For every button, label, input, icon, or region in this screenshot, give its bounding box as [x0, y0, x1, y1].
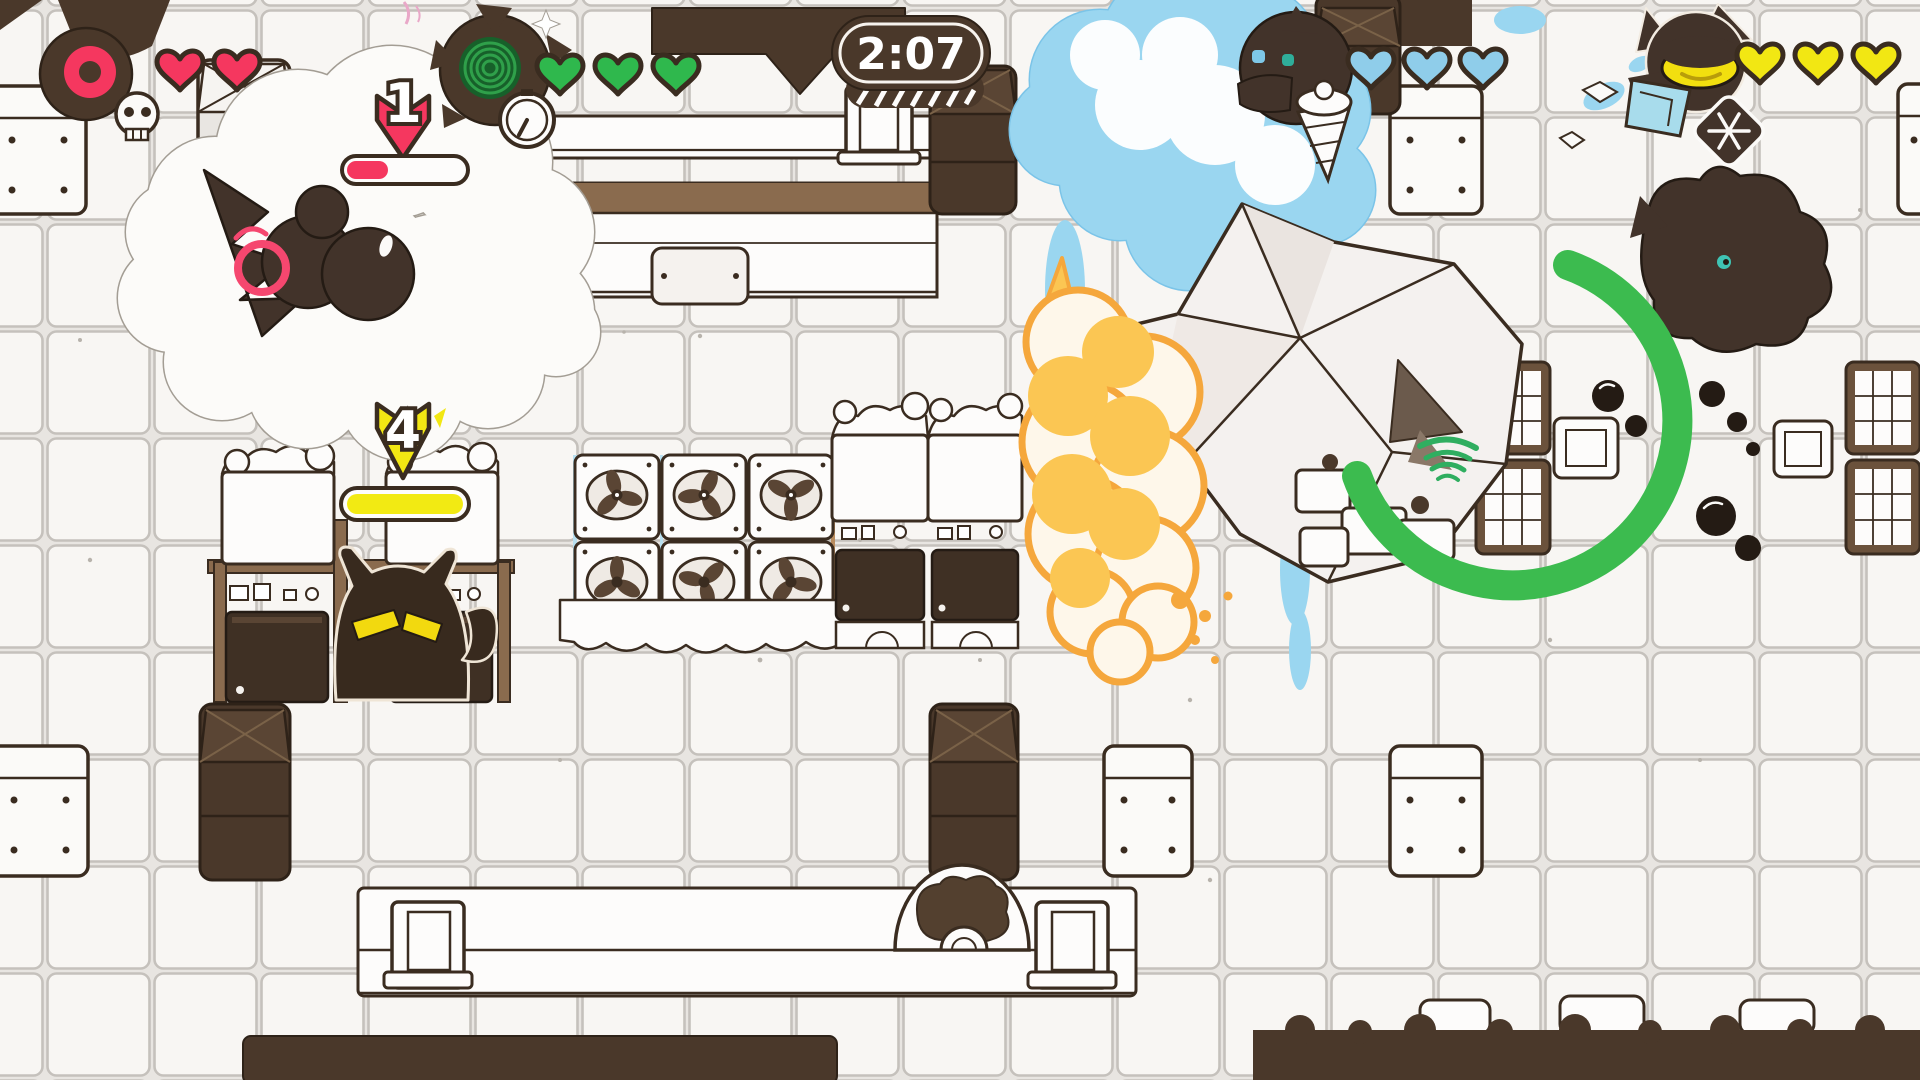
white-cube [1554, 418, 1618, 478]
crate [1898, 84, 1920, 214]
bomb [1625, 415, 1647, 437]
conveyor-slider [384, 902, 472, 988]
vending-machine [832, 393, 928, 648]
sheep-creature[interactable] [322, 228, 414, 320]
radiator [1846, 362, 1920, 454]
hearts-player-4 [1737, 44, 1899, 83]
arena-scene: 4 [0, 0, 1920, 1080]
crate [0, 746, 88, 876]
fan-skirt [560, 600, 846, 653]
hearts-player-2 [537, 55, 699, 94]
drop-count-cat: 4 [385, 401, 421, 461]
cat-meter-fill [347, 494, 463, 514]
vending-machine [928, 394, 1022, 648]
ice-cube-icon [1626, 80, 1690, 136]
white-cube [1774, 421, 1832, 477]
game-viewport[interactable]: 4 [0, 0, 1920, 1080]
dolphin-eye [1252, 50, 1265, 63]
fan-vents [560, 455, 846, 653]
timer: 2:07 [832, 16, 990, 108]
crate [1390, 746, 1482, 876]
hearts-player-3 [1348, 49, 1506, 88]
p2-meter-fill [347, 161, 388, 179]
swirl-eye [459, 37, 521, 99]
radiator [1846, 460, 1920, 554]
drop-count-p2: 1 [384, 72, 422, 135]
crate [1104, 746, 1192, 876]
crate [1390, 86, 1482, 214]
timer-text: 2:07 [856, 29, 965, 80]
belt-stripe [553, 183, 937, 213]
barrel [930, 704, 1018, 880]
conveyor-slider [1028, 902, 1116, 988]
barrel [200, 704, 290, 880]
floor-plate [652, 248, 748, 304]
